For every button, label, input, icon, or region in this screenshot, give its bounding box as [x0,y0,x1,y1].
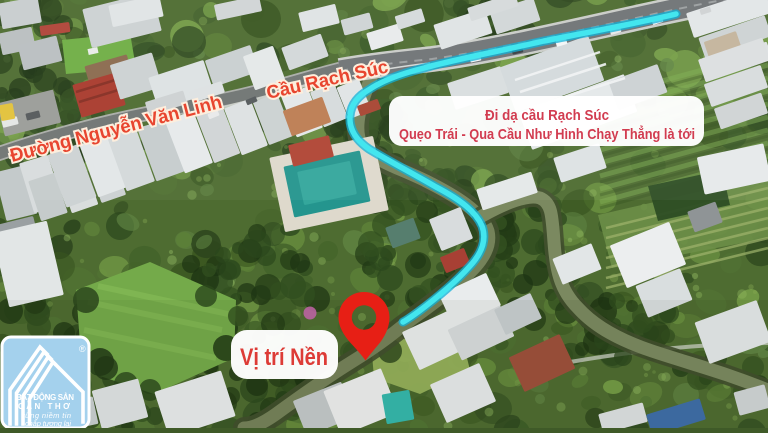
svg-text:Đi dạ cầu Rạch Súc: Đi dạ cầu Rạch Súc [485,107,609,124]
svg-text:chắp tương lai: chắp tương lai [25,419,71,428]
svg-text:CẦN THƠ: CẦN THƠ [18,401,72,411]
svg-text:Vị trí Nền: Vị trí Nền [240,344,328,371]
svg-text:BẤT ĐỘNG SẢN: BẤT ĐỘNG SẢN [16,392,74,402]
svg-text:®: ® [79,344,86,354]
svg-text:Quẹo Trái - Qua Cầu Như Hình C: Quẹo Trái - Qua Cầu Như Hình Chạy Thẳng … [399,125,695,143]
